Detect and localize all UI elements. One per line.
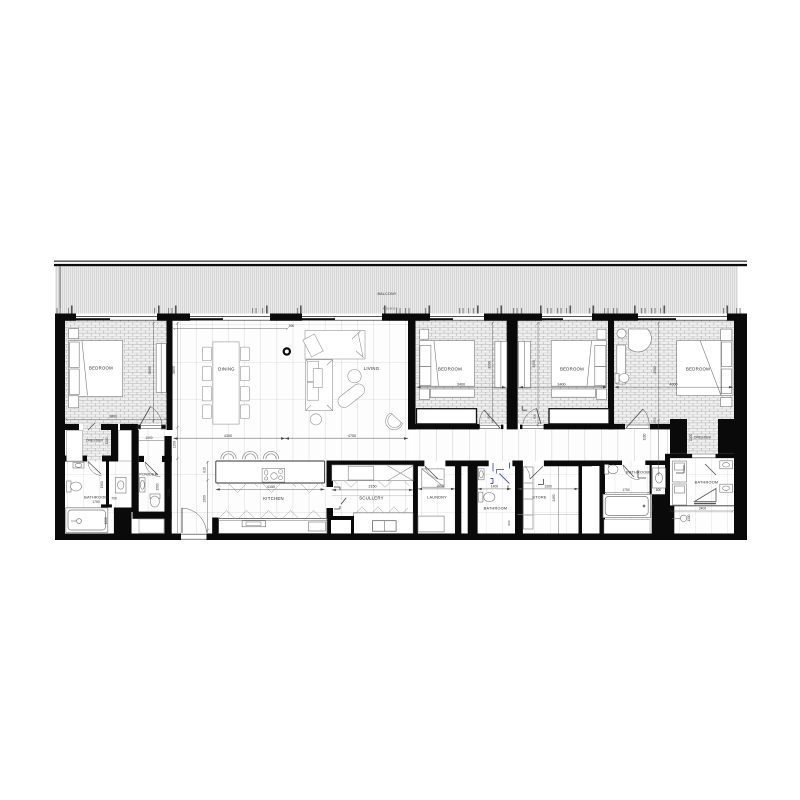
- svg-text:810: 810: [203, 467, 207, 473]
- svg-text:1750: 1750: [92, 500, 100, 504]
- svg-text:3400: 3400: [457, 382, 465, 386]
- svg-text:4000: 4000: [669, 382, 677, 386]
- svg-text:BEDROOM: BEDROOM: [560, 367, 584, 372]
- svg-text:2700: 2700: [167, 489, 171, 497]
- svg-text:DRESSER: DRESSER: [694, 436, 712, 440]
- svg-text:890: 890: [289, 324, 295, 328]
- svg-text:1400: 1400: [491, 485, 499, 489]
- svg-text:4300: 4300: [224, 434, 232, 438]
- svg-text:600: 600: [533, 414, 537, 419]
- svg-text:3800: 3800: [109, 414, 117, 418]
- svg-text:1000: 1000: [203, 495, 207, 503]
- svg-text:BEDROOM: BEDROOM: [686, 367, 710, 372]
- svg-text:1500: 1500: [156, 483, 160, 490]
- svg-text:2400: 2400: [699, 507, 707, 511]
- svg-text:650: 650: [651, 504, 655, 509]
- svg-text:2200: 2200: [545, 485, 553, 489]
- svg-text:3000: 3000: [653, 366, 657, 374]
- svg-text:1750: 1750: [622, 488, 630, 492]
- svg-text:700: 700: [111, 497, 117, 501]
- svg-text:500: 500: [653, 417, 657, 422]
- svg-text:4150: 4150: [267, 485, 275, 489]
- svg-text:BATHROOM: BATHROOM: [695, 481, 719, 485]
- svg-text:BEDROOM: BEDROOM: [89, 366, 113, 371]
- svg-text:BATHROOM: BATHROOM: [84, 496, 108, 500]
- svg-text:600: 600: [507, 520, 511, 525]
- svg-text:1500: 1500: [100, 481, 104, 488]
- svg-text:POWDER: POWDER: [139, 473, 158, 477]
- svg-text:900: 900: [506, 485, 510, 490]
- svg-text:1000: 1000: [145, 436, 152, 440]
- svg-text:LIVING: LIVING: [364, 366, 380, 371]
- svg-text:1000: 1000: [104, 517, 108, 524]
- svg-text:3400: 3400: [557, 382, 565, 386]
- svg-text:1200: 1200: [172, 441, 176, 449]
- svg-text:3300: 3300: [487, 361, 491, 369]
- svg-text:BATHROOM: BATHROOM: [484, 507, 508, 511]
- svg-text:3150: 3150: [368, 485, 376, 489]
- svg-text:1600: 1600: [436, 484, 444, 488]
- svg-text:BATHROOM: BATHROOM: [626, 471, 650, 475]
- svg-text:4750: 4750: [348, 434, 356, 438]
- svg-text:DRESSER: DRESSER: [86, 439, 104, 443]
- svg-text:BEDROOM: BEDROOM: [438, 367, 462, 372]
- svg-text:1100: 1100: [643, 433, 647, 440]
- svg-text:LAUNDRY: LAUNDRY: [427, 496, 447, 500]
- svg-text:DINING: DINING: [218, 367, 235, 372]
- svg-text:3600: 3600: [148, 366, 152, 374]
- svg-text:KITCHEN: KITCHEN: [263, 496, 284, 501]
- svg-text:BALCONY: BALCONY: [377, 292, 396, 296]
- svg-text:1100: 1100: [687, 514, 691, 521]
- svg-text:3600: 3600: [172, 366, 176, 374]
- svg-text:800: 800: [487, 413, 491, 418]
- svg-text:2450: 2450: [552, 494, 556, 501]
- svg-text:1200: 1200: [689, 434, 693, 441]
- svg-text:SCULLERY: SCULLERY: [359, 495, 384, 500]
- svg-text:STORE: STORE: [532, 496, 546, 500]
- svg-text:3300: 3300: [532, 360, 536, 368]
- svg-text:1200: 1200: [105, 437, 109, 444]
- svg-text:600: 600: [656, 488, 662, 492]
